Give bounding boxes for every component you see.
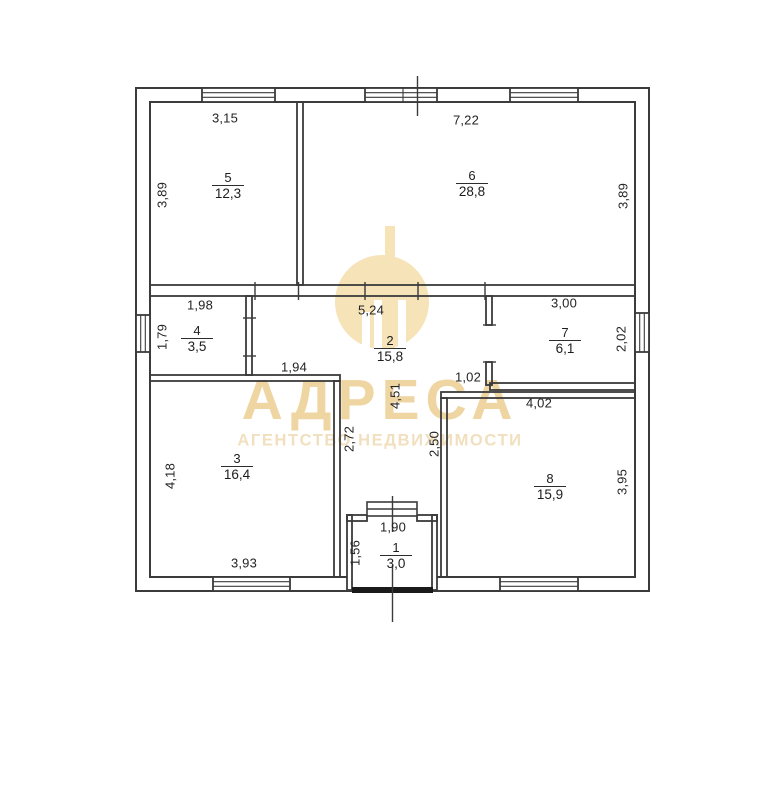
floor-plan-page: АДРЕСА АГЕНТСТВО НЕДВИЖИМОСТИ <box>0 0 758 800</box>
window-room3-bottom <box>213 577 290 591</box>
floor-plan-drawing <box>0 0 758 800</box>
window-room8-bottom <box>500 577 578 591</box>
window-room6-top-left <box>365 88 437 102</box>
window-room4-left <box>136 315 150 352</box>
window-room6-top-right <box>510 88 578 102</box>
window-room5-top <box>202 88 275 102</box>
window-room7-right <box>635 313 649 352</box>
axis-ticks <box>243 76 496 622</box>
